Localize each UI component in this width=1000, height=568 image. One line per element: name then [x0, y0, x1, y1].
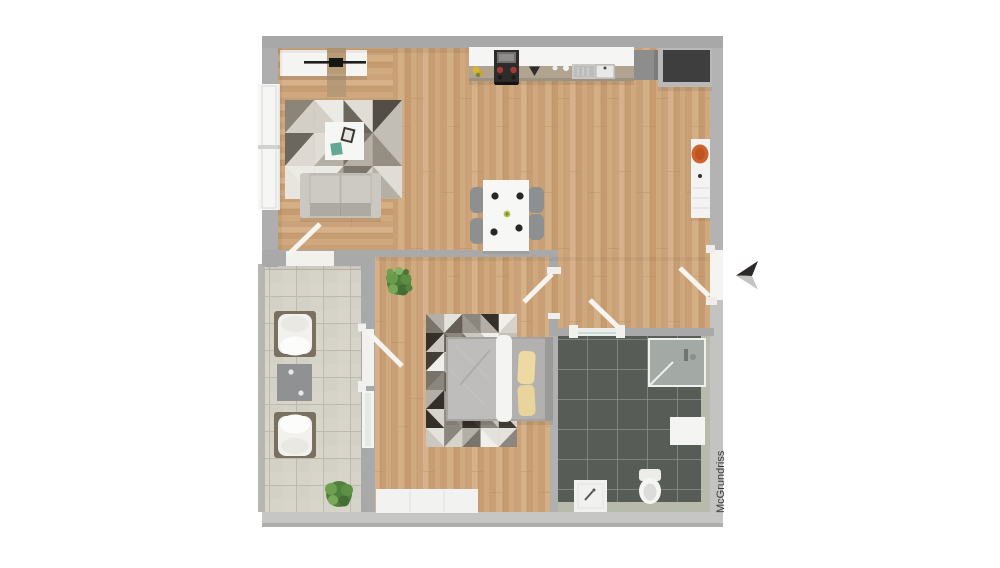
svg-text:McGrundriss: McGrundriss [715, 450, 727, 513]
